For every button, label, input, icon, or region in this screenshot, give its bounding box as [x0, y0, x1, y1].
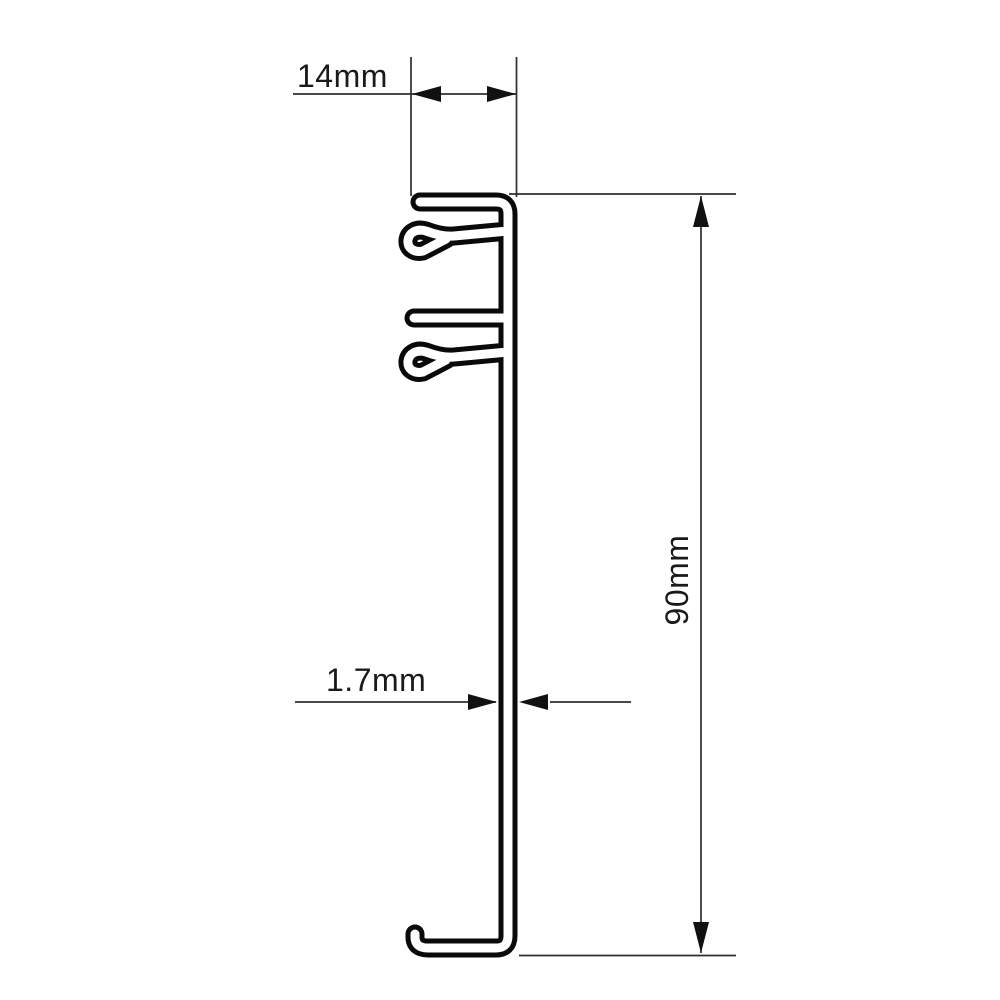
profile-cross-section: [408, 202, 508, 948]
dimension-label-overall-height: 90mm: [659, 535, 695, 626]
dimension-top-width: 14mm: [293, 57, 517, 197]
dimension-label-wall-thickness: 1.7mm: [326, 662, 426, 698]
dimension-label-top-width: 14mm: [297, 58, 388, 94]
technical-drawing-canvas: 14mm 90mm 1.7mm: [0, 0, 1000, 1000]
arrowhead-right-icon: [487, 86, 516, 102]
profile-drawing-svg: 14mm 90mm 1.7mm: [0, 0, 1000, 1000]
arrowhead-left-icon: [519, 694, 548, 710]
profile-outline-core: [408, 202, 508, 948]
arrowhead-down-icon: [693, 922, 709, 953]
arrowhead-left-icon: [412, 86, 441, 102]
arrowhead-right-icon: [468, 694, 497, 710]
arrowhead-up-icon: [693, 196, 709, 227]
dimension-wall-thickness: 1.7mm: [295, 662, 631, 710]
dimension-overall-height: 90mm: [509, 194, 736, 956]
